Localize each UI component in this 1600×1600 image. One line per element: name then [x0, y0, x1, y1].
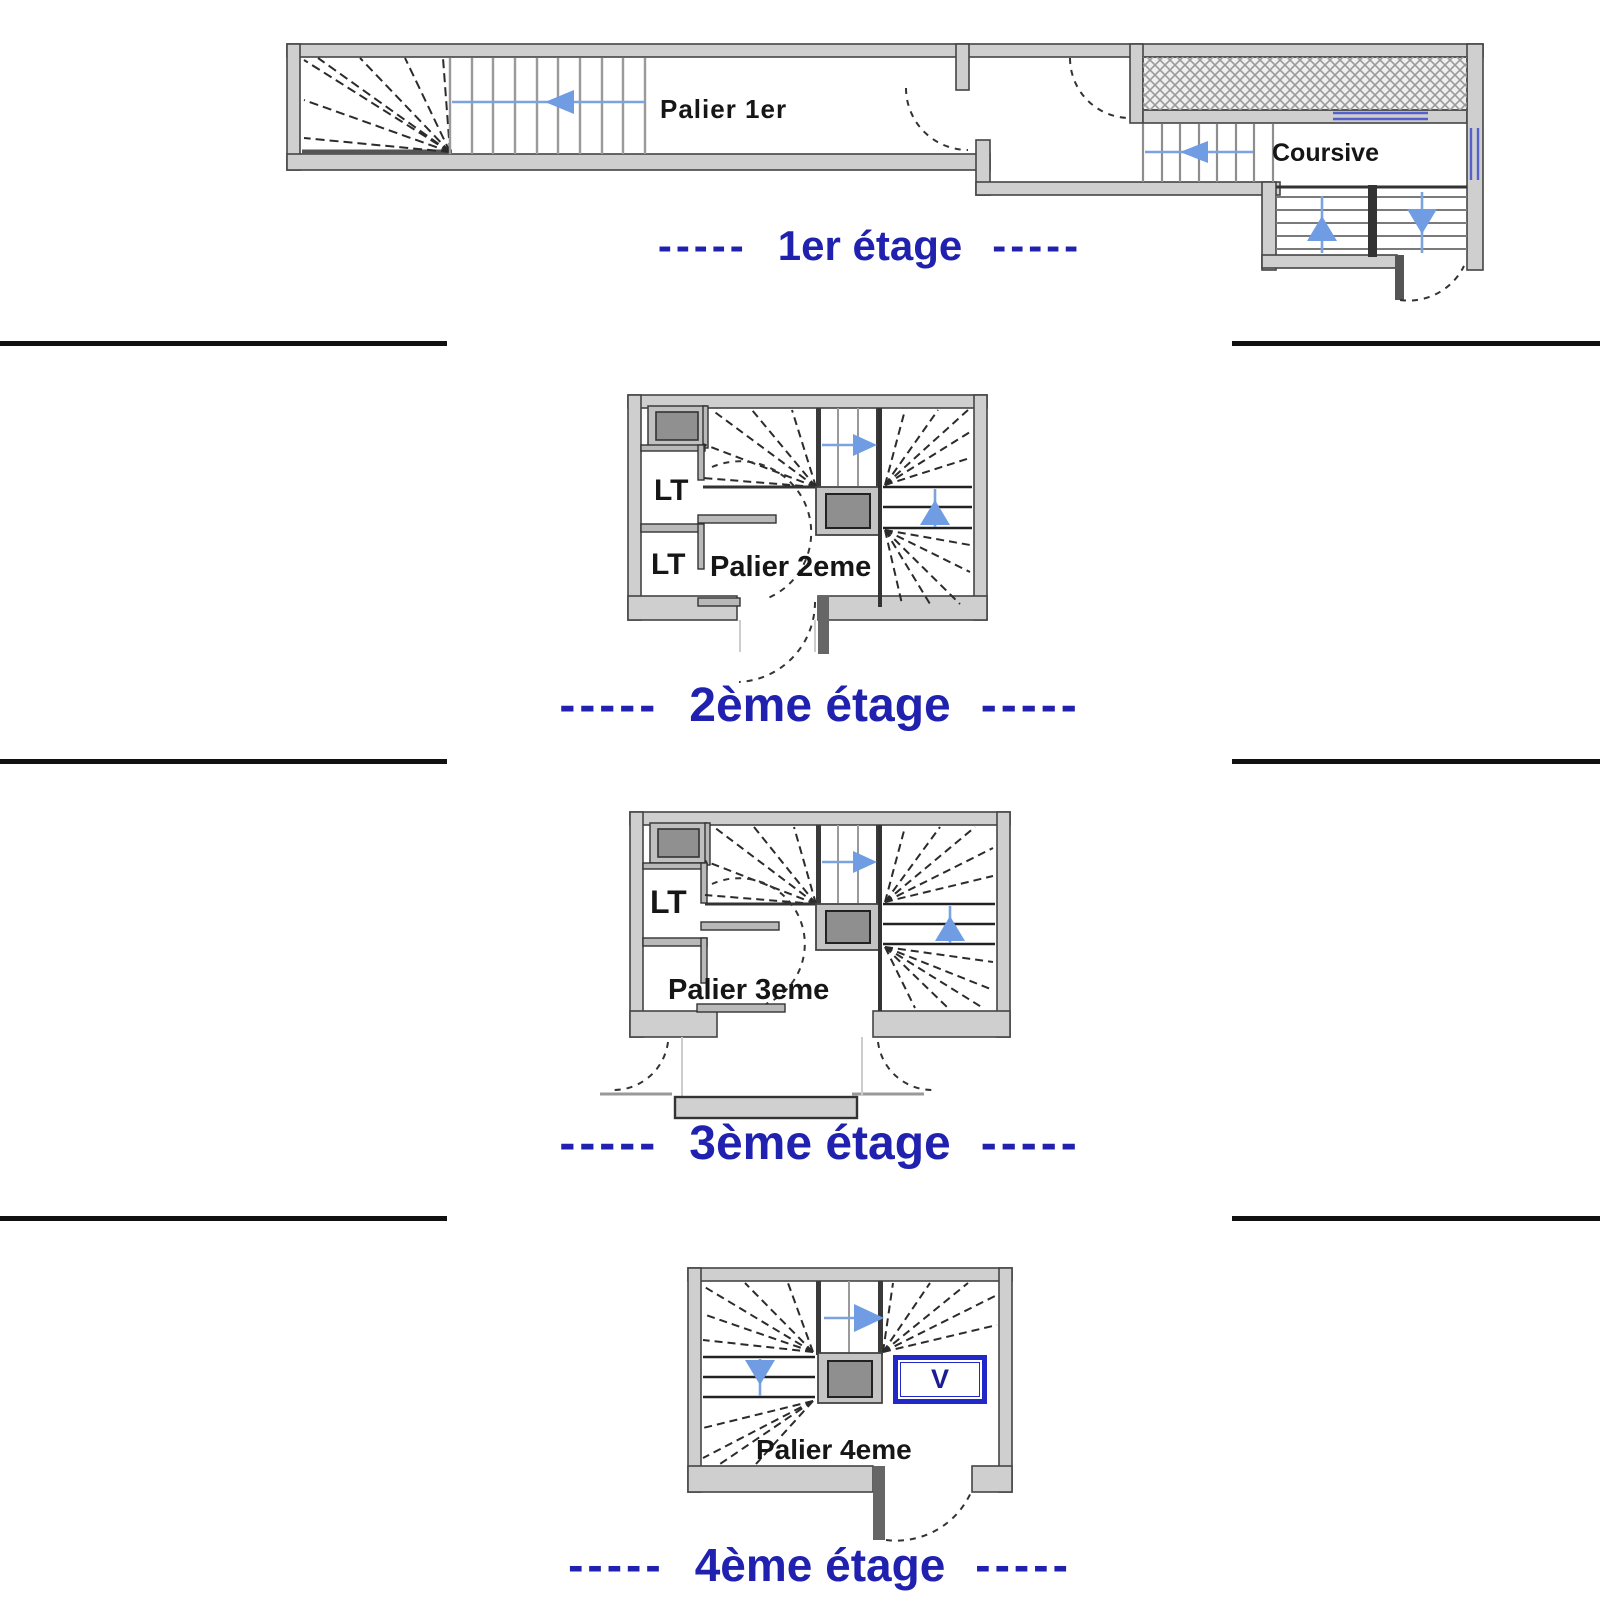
- balcony-slab: [675, 1097, 857, 1118]
- room-label-palier-2eme: Palier 2eme: [710, 551, 871, 584]
- caption-text: 2ème étage: [689, 678, 951, 733]
- caption-dashes: -----: [981, 678, 1081, 733]
- room-label-lt-bottom: LT: [651, 548, 685, 582]
- up-arrow-icon: [1307, 196, 1337, 253]
- door-reveal-lines: [740, 620, 815, 652]
- section-divider: [1232, 759, 1600, 764]
- duct-shaft: [648, 406, 706, 446]
- caption-dashes: -----: [992, 222, 1082, 270]
- room-label-palier-3eme: Palier 3eme: [668, 974, 829, 1007]
- ventilation-marker-label: V: [931, 1364, 949, 1395]
- caption-dashes: -----: [658, 222, 748, 270]
- elevator-shaft: [816, 487, 880, 535]
- room-label-lt: LT: [650, 884, 687, 921]
- duct-shaft: [650, 823, 707, 863]
- elevator-shaft: [816, 904, 880, 950]
- floor3-plan-drawing: [590, 808, 1020, 1123]
- section-divider: [0, 1216, 447, 1221]
- ventilation-marker-box: V: [893, 1355, 987, 1404]
- door-jamb-stub: [873, 1466, 885, 1540]
- section-divider: [1232, 341, 1600, 346]
- elevator-shaft: [818, 1353, 882, 1403]
- section-divider: [0, 759, 447, 764]
- floor2-plan-drawing: [620, 390, 995, 690]
- divider-wall: [878, 408, 882, 607]
- caption-dashes: -----: [559, 1116, 659, 1171]
- section-divider: [0, 341, 447, 346]
- door-swing-arc: [886, 1490, 972, 1541]
- flight-divider-wall: [1368, 185, 1377, 257]
- caption-dashes: -----: [981, 1116, 1081, 1171]
- hatched-roof-area: [1143, 57, 1467, 110]
- room-label-palier-1er: Palier 1er: [660, 94, 787, 125]
- door-jamb-stub: [1395, 255, 1404, 300]
- floor4-plan-drawing: [680, 1262, 1020, 1582]
- door-reveal-lines: [682, 1037, 862, 1096]
- room-label-lt-top: LT: [654, 474, 688, 508]
- floor-plans-page: Palier 1er Coursive LT LT Palier 2eme LT…: [0, 0, 1600, 1600]
- caption-floor2: ----- 2ème étage -----: [450, 678, 1190, 733]
- caption-text: 1er étage: [778, 222, 962, 270]
- caption-floor3: ----- 3ème étage -----: [450, 1116, 1190, 1171]
- divider-wall: [878, 825, 882, 1011]
- room-label-coursive: Coursive: [1272, 139, 1379, 168]
- caption-text: 3ème étage: [689, 1116, 951, 1171]
- door-jamb-stub: [818, 596, 829, 654]
- section-divider: [1232, 1216, 1600, 1221]
- caption-text: 4ème étage: [695, 1538, 946, 1592]
- caption-dashes: -----: [568, 1538, 665, 1592]
- corridor-interior: [300, 57, 956, 154]
- caption-dashes: -----: [559, 678, 659, 733]
- room-label-palier-4eme: Palier 4eme: [756, 1434, 912, 1466]
- caption-floor1: ----- 1er étage -----: [520, 222, 1220, 270]
- caption-floor4: ----- 4ème étage -----: [440, 1538, 1200, 1592]
- caption-dashes: -----: [975, 1538, 1072, 1592]
